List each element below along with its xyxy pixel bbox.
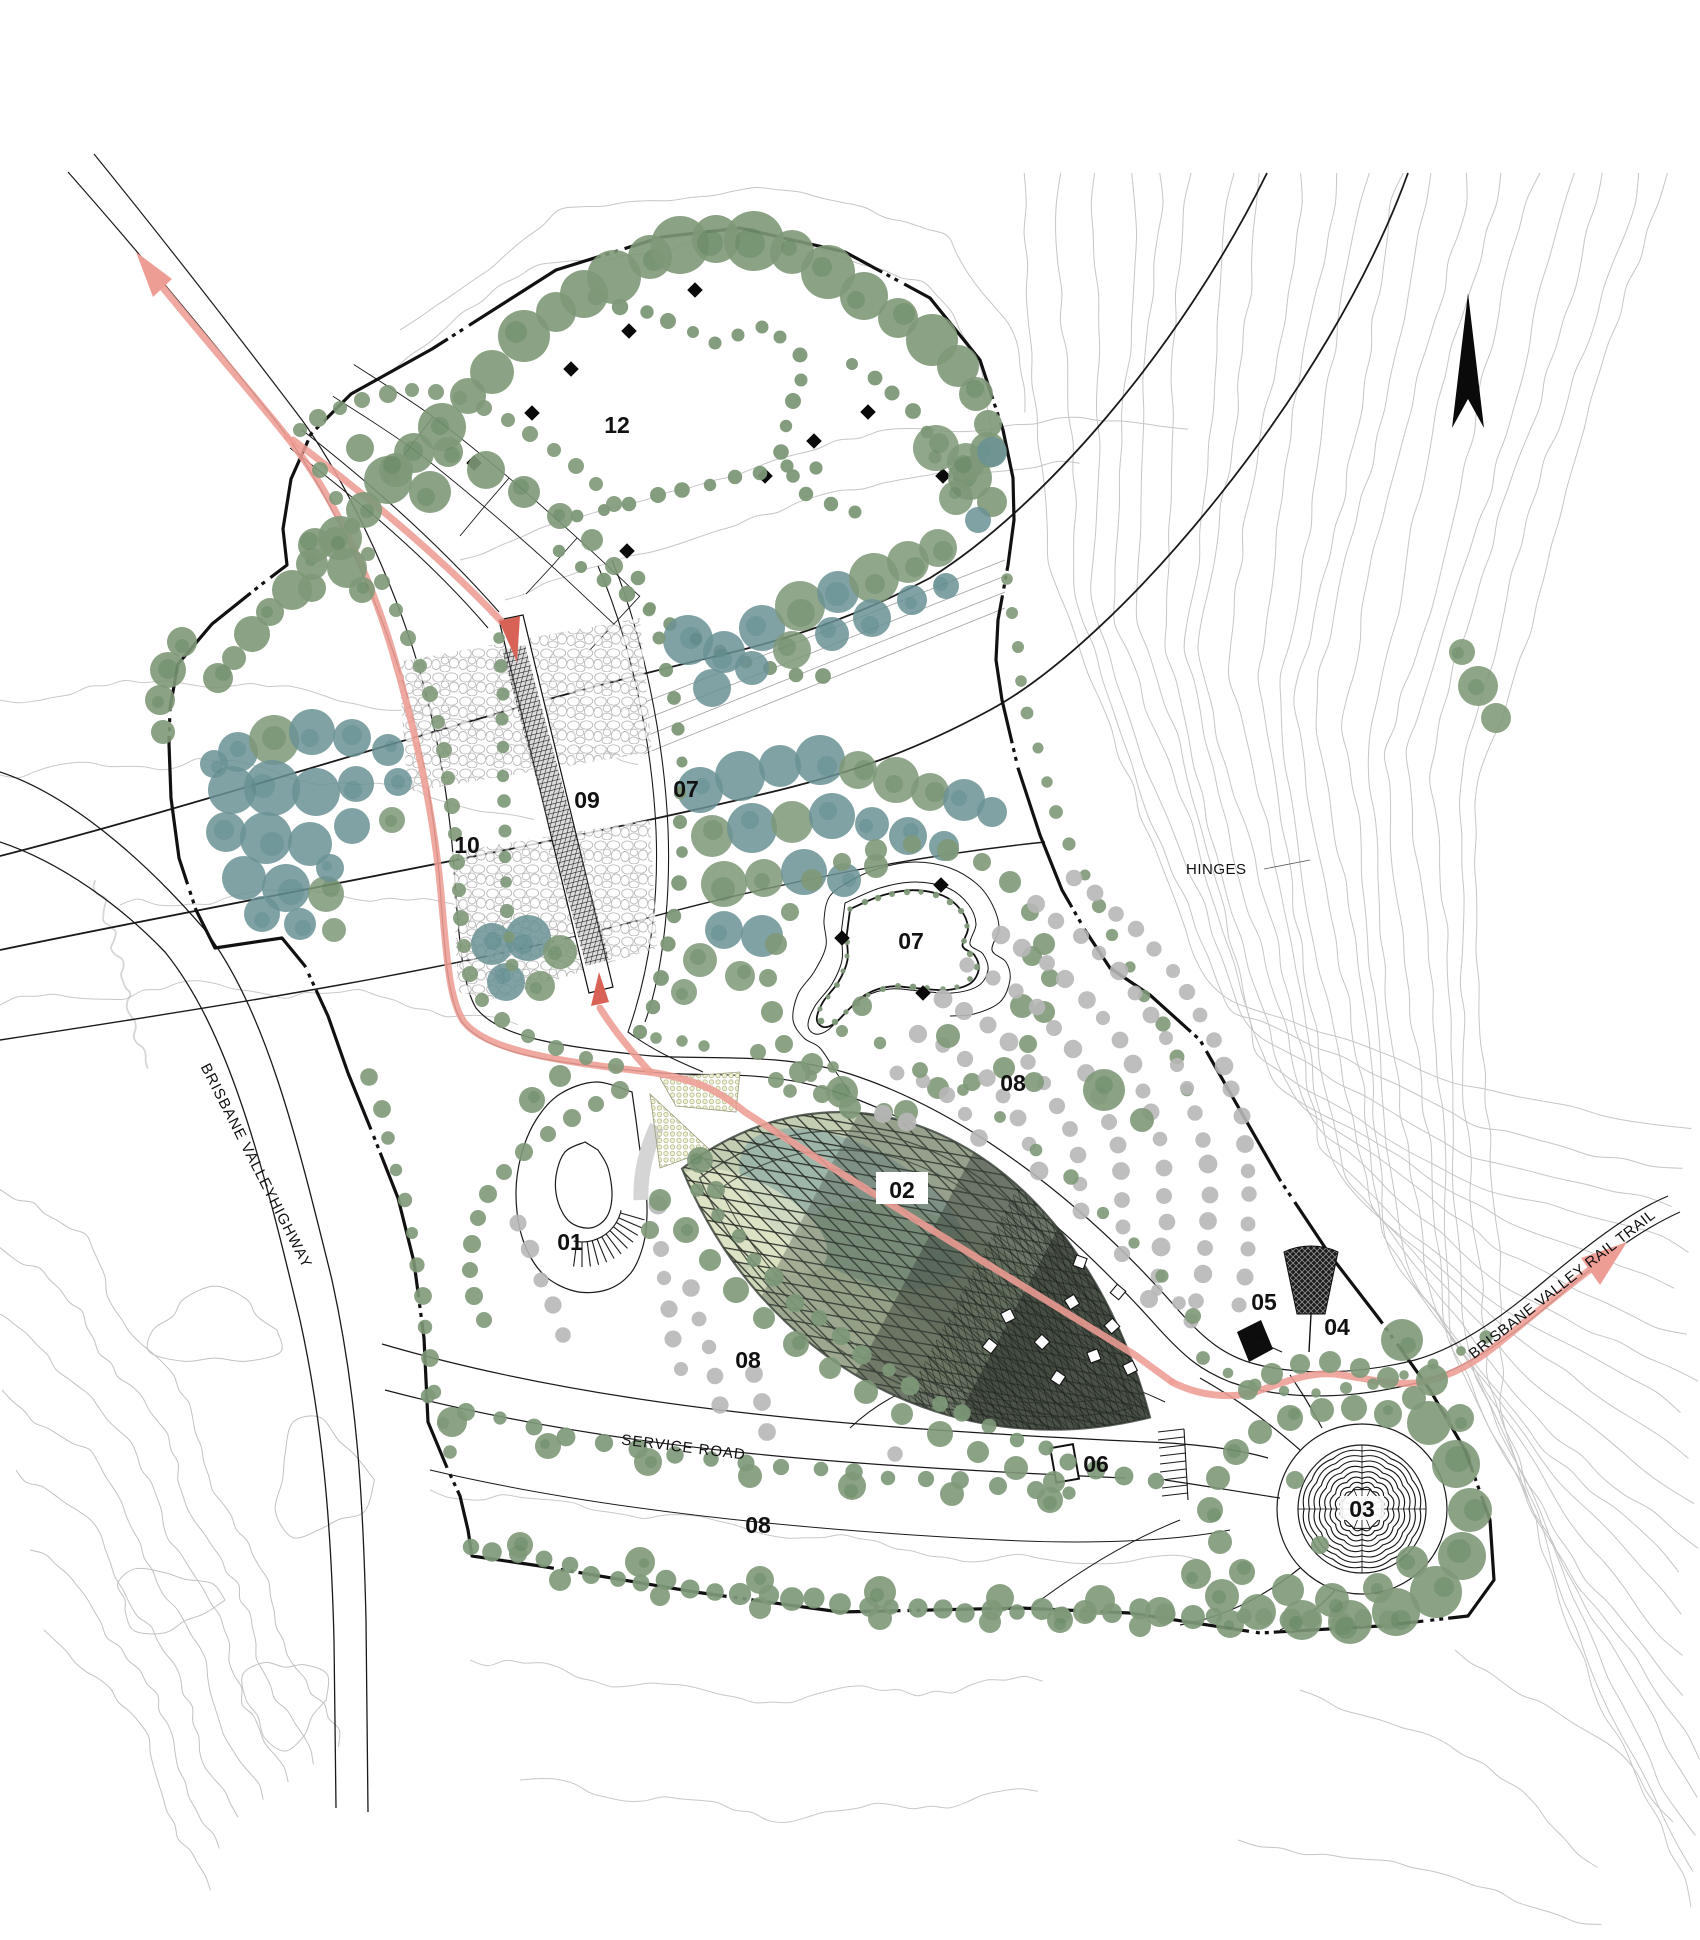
svg-text:06: 06 [1083, 1451, 1109, 1477]
svg-text:07: 07 [673, 776, 699, 802]
svg-text:07: 07 [898, 928, 924, 954]
svg-text:HINGES: HINGES [1186, 861, 1247, 878]
svg-text:10: 10 [454, 832, 480, 858]
svg-text:08: 08 [1000, 1070, 1026, 1096]
svg-text:09: 09 [574, 787, 600, 813]
svg-text:03: 03 [1349, 1496, 1375, 1522]
svg-text:08: 08 [735, 1347, 761, 1373]
svg-text:08: 08 [745, 1512, 771, 1538]
svg-text:04: 04 [1324, 1314, 1350, 1340]
svg-text:12: 12 [604, 412, 630, 438]
svg-text:05: 05 [1251, 1289, 1277, 1315]
svg-text:02: 02 [889, 1177, 915, 1203]
svg-text:01: 01 [557, 1229, 583, 1255]
